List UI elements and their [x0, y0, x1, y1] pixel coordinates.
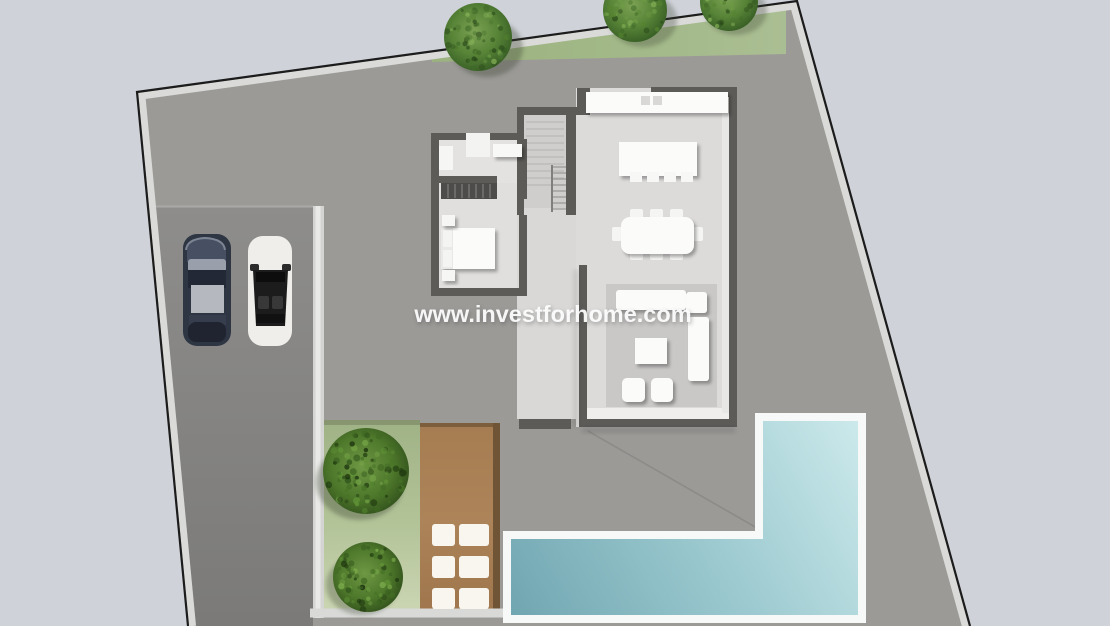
svg-text:www.investforhome.com: www.investforhome.com [413, 301, 691, 327]
